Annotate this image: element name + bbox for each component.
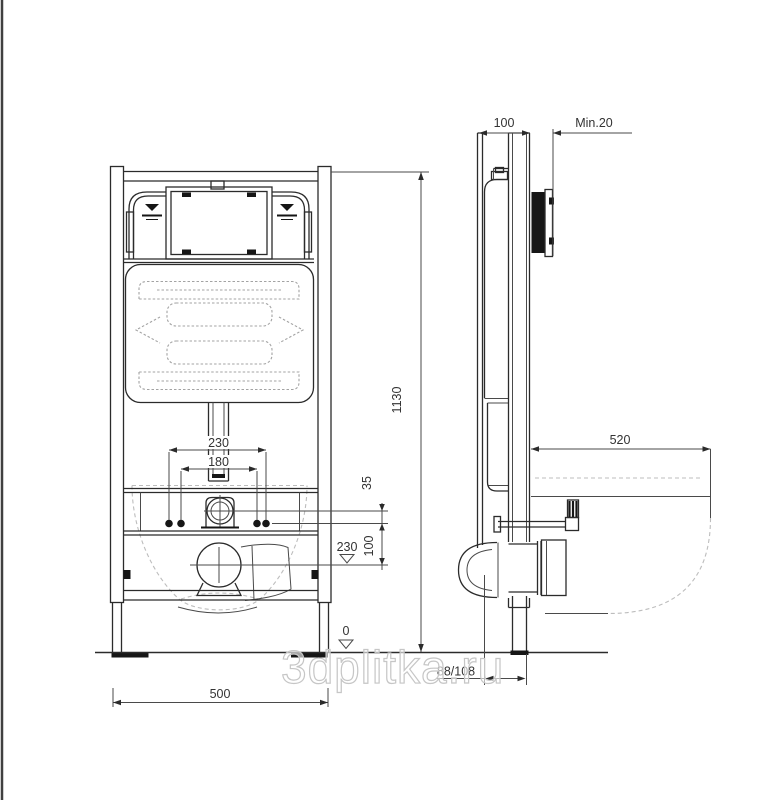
- dim-label-frame-height: 1130: [390, 387, 404, 414]
- top-tab: [211, 181, 224, 189]
- flush-plate-frame: [166, 187, 272, 259]
- cistern-tank: [126, 265, 314, 403]
- dim-label-flush-pipe-width: 230: [208, 436, 229, 450]
- dim-label-floor-level: 0: [343, 624, 350, 638]
- frame-side-view: [459, 129, 711, 685]
- water-level-icon: [280, 204, 294, 211]
- dim-bolts-above-outlet: 100: [362, 536, 376, 557]
- right-upright: [318, 167, 331, 603]
- cistern-side-profile: [485, 168, 509, 492]
- dim-frame-depth: 100: [479, 116, 530, 136]
- water-level-icon: [145, 204, 159, 211]
- frame-front-view: [111, 167, 332, 658]
- left-foot: [112, 603, 149, 658]
- hidden-bowl-outline-side: [531, 478, 711, 614]
- dim-label-wall-clearance: Min.20: [575, 116, 613, 130]
- watermark: 3dplitka.ru: [281, 641, 504, 693]
- level-marker-icon: [340, 555, 354, 564]
- drain-elbow-side: [459, 540, 567, 598]
- water-supply-pipe-side: [494, 500, 579, 532]
- dim-bowl-projection: 520: [531, 433, 711, 518]
- dim-wall-clearance: Min.20: [553, 116, 632, 136]
- dim-label-inlet-above-bolts: 35: [360, 476, 374, 490]
- dim-label-bowl-projection: 520: [610, 433, 631, 447]
- dim-label-bolts-above-outlet: 100: [362, 536, 376, 557]
- left-bracket: [127, 192, 167, 259]
- dim-bolt-spacing: 180: [181, 455, 257, 520]
- dim-label-bolt-spacing: 180: [208, 455, 229, 469]
- dim-label-frame-depth: 100: [494, 116, 515, 130]
- installation-frame-drawing-page: 230 180 35 100 230 0 500: [0, 0, 759, 800]
- upright-column-side: [494, 133, 530, 608]
- technical-drawing: 230 180 35 100 230 0 500: [0, 0, 759, 800]
- drain-outlet: [197, 543, 291, 601]
- dim-label-outlet-level: 230: [337, 540, 358, 554]
- dim-frame-height: 1130: [331, 172, 429, 652]
- left-upright: [111, 167, 124, 603]
- dim-label-frame-width: 500: [210, 687, 231, 701]
- right-bracket: [272, 192, 312, 259]
- wall-mount-plate: [532, 129, 555, 257]
- dim-outlet-level: 230: [337, 540, 358, 563]
